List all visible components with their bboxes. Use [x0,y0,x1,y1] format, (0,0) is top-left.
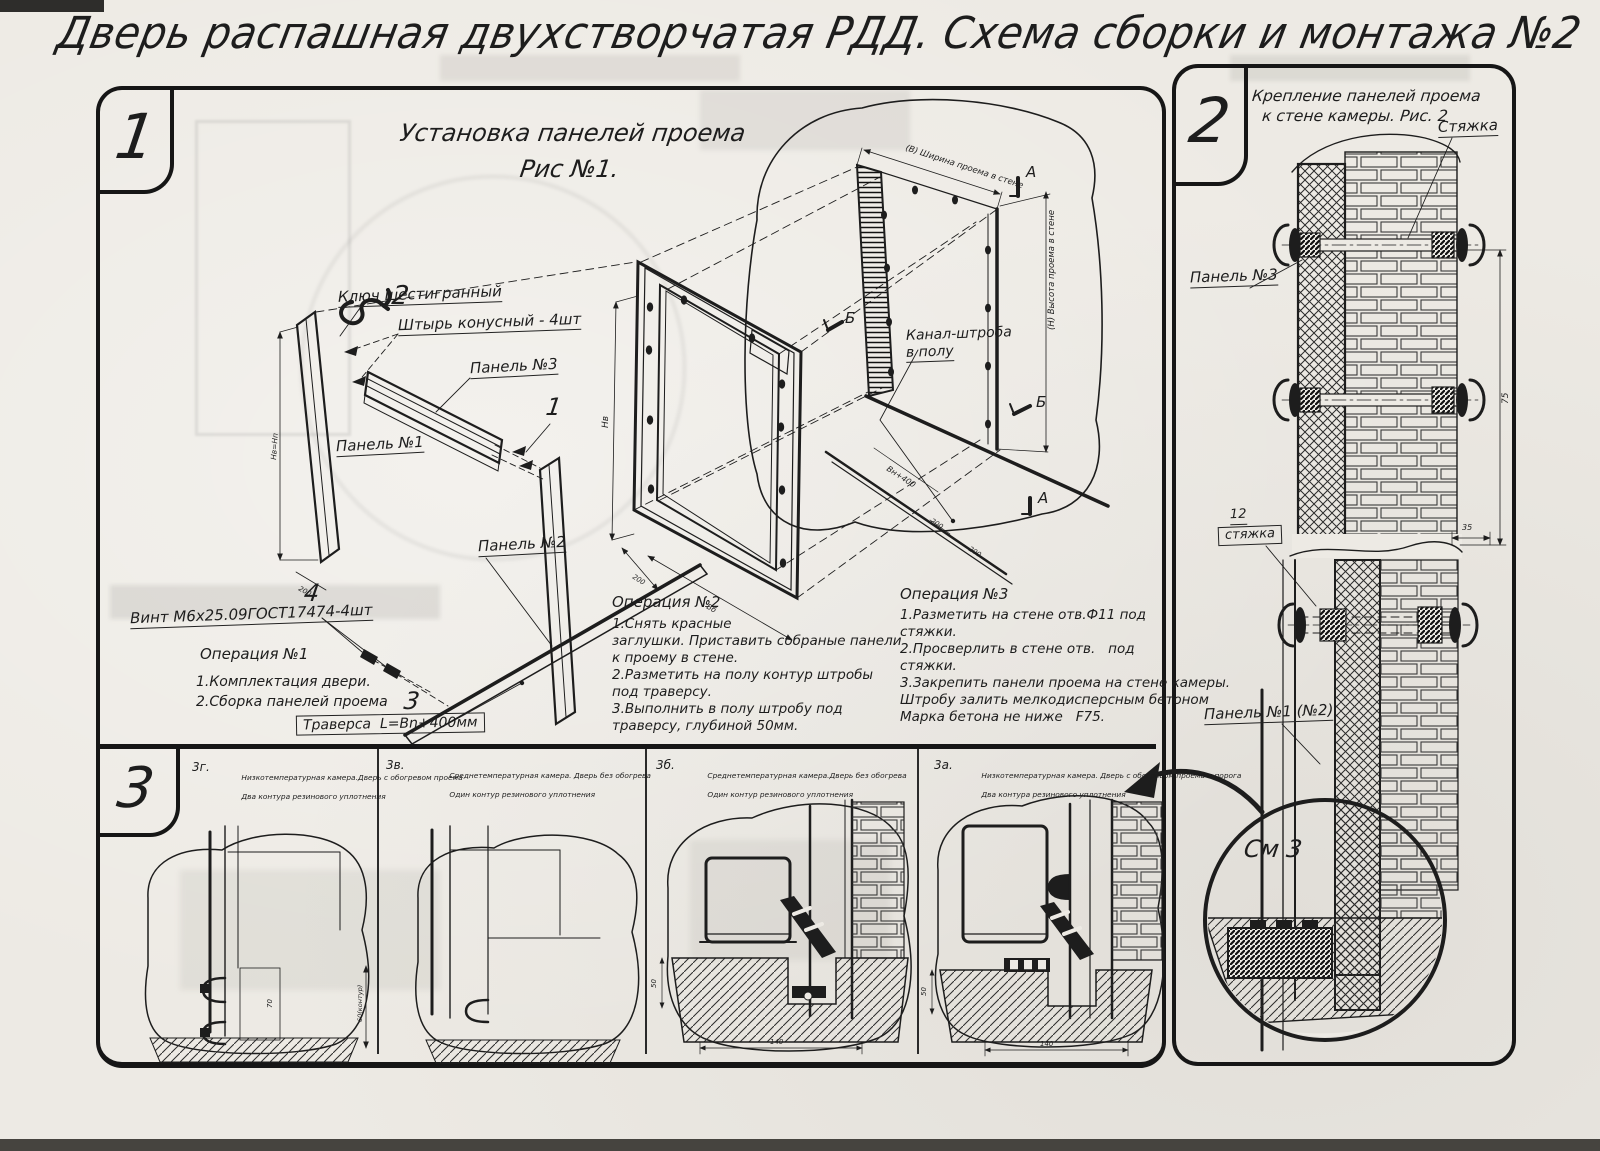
section-marker-a-bottom: А [1038,490,1048,507]
detail-3b-caption-line1: Среднетемпературная камера.Дверь без обо… [707,771,906,780]
detail-3v-caption-line1: Среднетемпературная камера. Дверь без об… [449,771,651,780]
section2-title-line2: к стене камеры. Рис. 2 [1261,108,1449,126]
detail-3v-caption-line2: Один контур резинового уплотнения [449,790,595,799]
drawing-sheet: Дверь распашная двухстворчатая РДД. Схем… [0,0,1600,1151]
op2-line3: к проему в стене. [612,651,738,667]
op1-line2: 2.Сборка панелей проема [196,694,388,710]
label-tie: Стяжка [1438,117,1499,138]
detail-3a-caption-line1: Низкотемпературная камера. Дверь с обогр… [981,771,1241,780]
section-marker-b-frame: Б [845,310,855,327]
detail-3a-code: 3а. [934,758,953,772]
section2-title-line1: Крепление панелей проема [1251,88,1481,106]
op3-line1: 1.Разметить на стене отв.Ф11 под [900,608,1146,624]
section1-title-line2: Рис №1. [518,156,621,184]
op3-line3: 2.Просверлить в стене отв. под [900,642,1135,658]
section3-divider-3 [917,749,919,1054]
op3-line5: 3.Закрепить панели проема на стене камер… [900,676,1230,692]
op3-line2: стяжки. [900,625,957,641]
label-floor-channel-line2: в полу [906,343,954,363]
label-traverse: Траверса L=Bn+400мм [296,712,485,735]
op2-line1: 1.Снять красные [612,617,732,633]
detail-3g-caption-line2: Два контура резинового уплотнения [241,792,385,801]
scan-strip-bottom [0,1139,1600,1151]
sheet-title: Дверь распашная двухстворчатая РДД. Схем… [53,8,1477,59]
section2-frame [1172,64,1516,1066]
op3-line7: Марка бетона не ниже F75. [900,710,1105,726]
op2-line5: под траверсу. [612,685,712,701]
op3-line4: стяжки. [900,659,957,675]
op1-line1: 1.Комплектация двери. [196,674,371,690]
op2-line2: заглушки. Приставить собраные панели [612,634,902,650]
label-tie12-number: 12 [1230,508,1247,526]
section-marker-a-top: А [1026,164,1036,181]
section1-title-line1: Установка панелей проема [398,120,747,148]
op2-line7: траверсу, глубиной 50мм. [612,719,798,735]
detail-3a-caption: Низкотемпературная камера. Дверь с обогр… [972,762,1241,808]
op2-title: Операция №2 [612,594,720,611]
label-see-detail3: См 3 [1242,836,1304,864]
op3-title: Операция №3 [900,586,1008,603]
section3-divider [100,744,1156,749]
section-marker-b-wall: Б [1036,394,1046,411]
op3-line6: Штробу залить мелкодисперсным бетоном [900,693,1209,709]
label-sec2-panel3: Панель №3 [1190,266,1278,288]
detail-3g-code: 3г. [192,760,210,774]
detail-3v-caption: Среднетемпературная камера. Дверь без об… [440,762,651,808]
detail-3g-caption: Низкотемпературная камера.Дверь с обогре… [232,764,463,810]
op2-line4: 2.Разметить на полу контур штробы [612,668,873,684]
detail-3b-caption-line2: Один контур резинового уплотнения [707,790,853,799]
op1-title: Операция №1 [200,646,308,663]
detail-3b-code: 3б. [656,758,675,772]
detail-3v-code: 3в. [386,758,405,772]
detail-3b-caption: Среднетемпературная камера.Дверь без обо… [698,762,907,808]
label-tie12: стяжка [1218,525,1283,546]
detail-3a-caption-line2: Два контура резинового уплотнения [981,790,1125,799]
op2-line6: 3.Выполнить в полу штробу под [612,702,843,718]
detail-3g-caption-line1: Низкотемпературная камера.Дверь с обогре… [241,773,462,782]
section1-3-frame [96,86,1166,1068]
